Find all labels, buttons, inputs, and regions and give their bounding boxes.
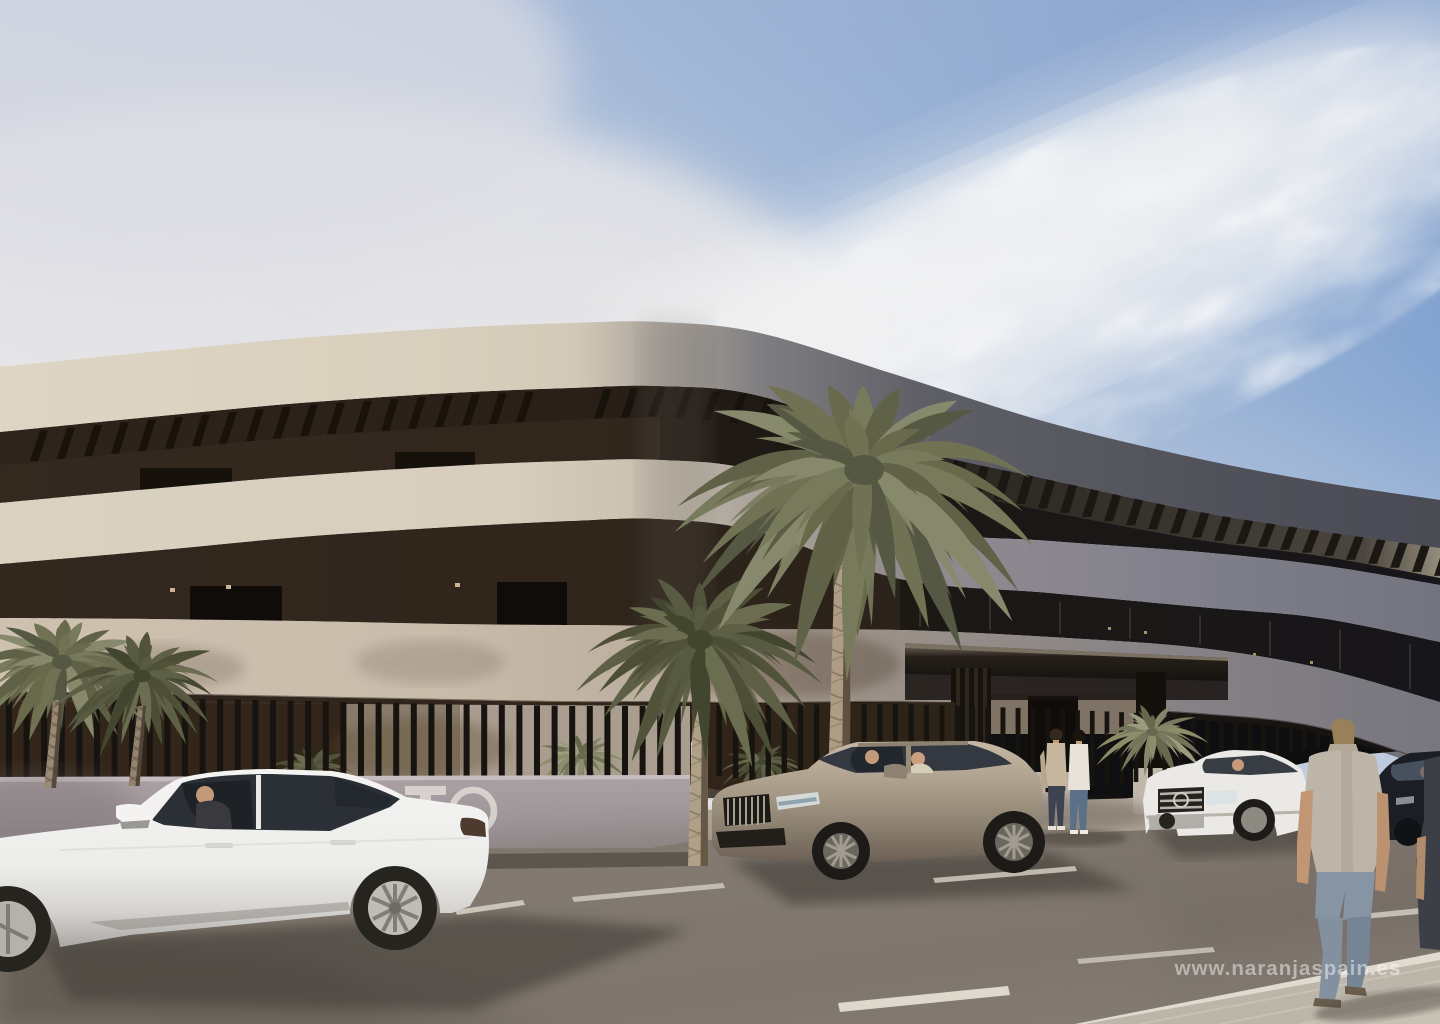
svg-text:www.naranjaspain.es: www.naranjaspain.es — [1174, 957, 1402, 980]
